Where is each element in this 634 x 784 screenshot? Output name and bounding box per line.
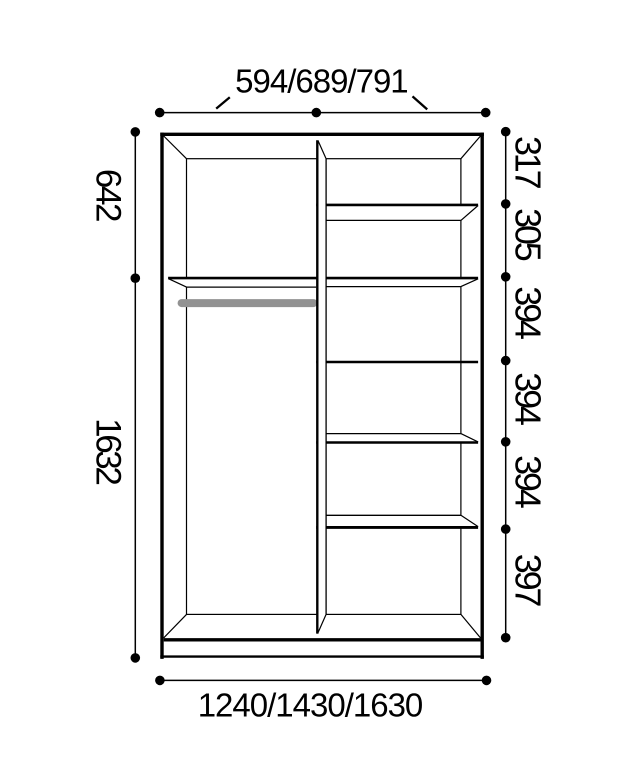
svg-text:394: 394 [507, 286, 548, 339]
svg-text:1240/1430/1630: 1240/1430/1630 [198, 687, 423, 724]
svg-text:305: 305 [507, 208, 548, 261]
svg-text:397: 397 [507, 554, 548, 607]
svg-text:642: 642 [88, 169, 127, 221]
svg-text:1632: 1632 [88, 418, 127, 484]
svg-text:594/689/791: 594/689/791 [235, 63, 408, 100]
svg-text:394: 394 [507, 455, 548, 508]
svg-text:317: 317 [507, 136, 548, 189]
svg-text:394: 394 [507, 372, 548, 425]
